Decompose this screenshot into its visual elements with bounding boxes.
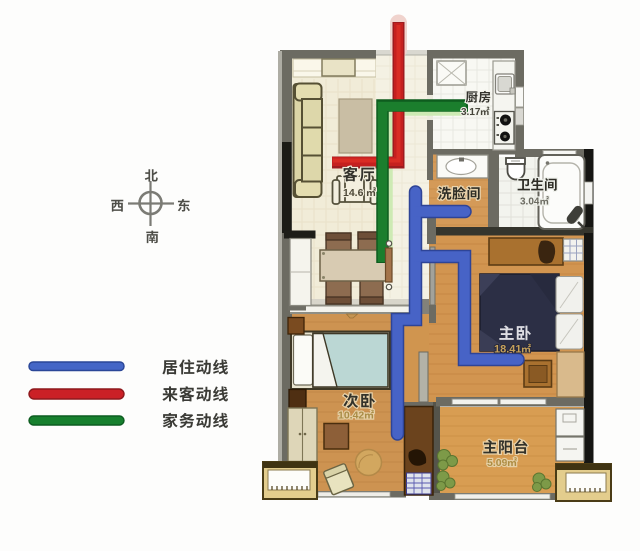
- svg-text:14.6: 14.6: [343, 187, 364, 199]
- svg-text:18.41: 18.41: [494, 344, 522, 356]
- svg-text:3.04: 3.04: [520, 197, 540, 208]
- svg-text:5.09: 5.09: [487, 457, 508, 469]
- svg-text:3.17: 3.17: [461, 107, 481, 118]
- svg-text:10.42: 10.42: [338, 410, 364, 422]
